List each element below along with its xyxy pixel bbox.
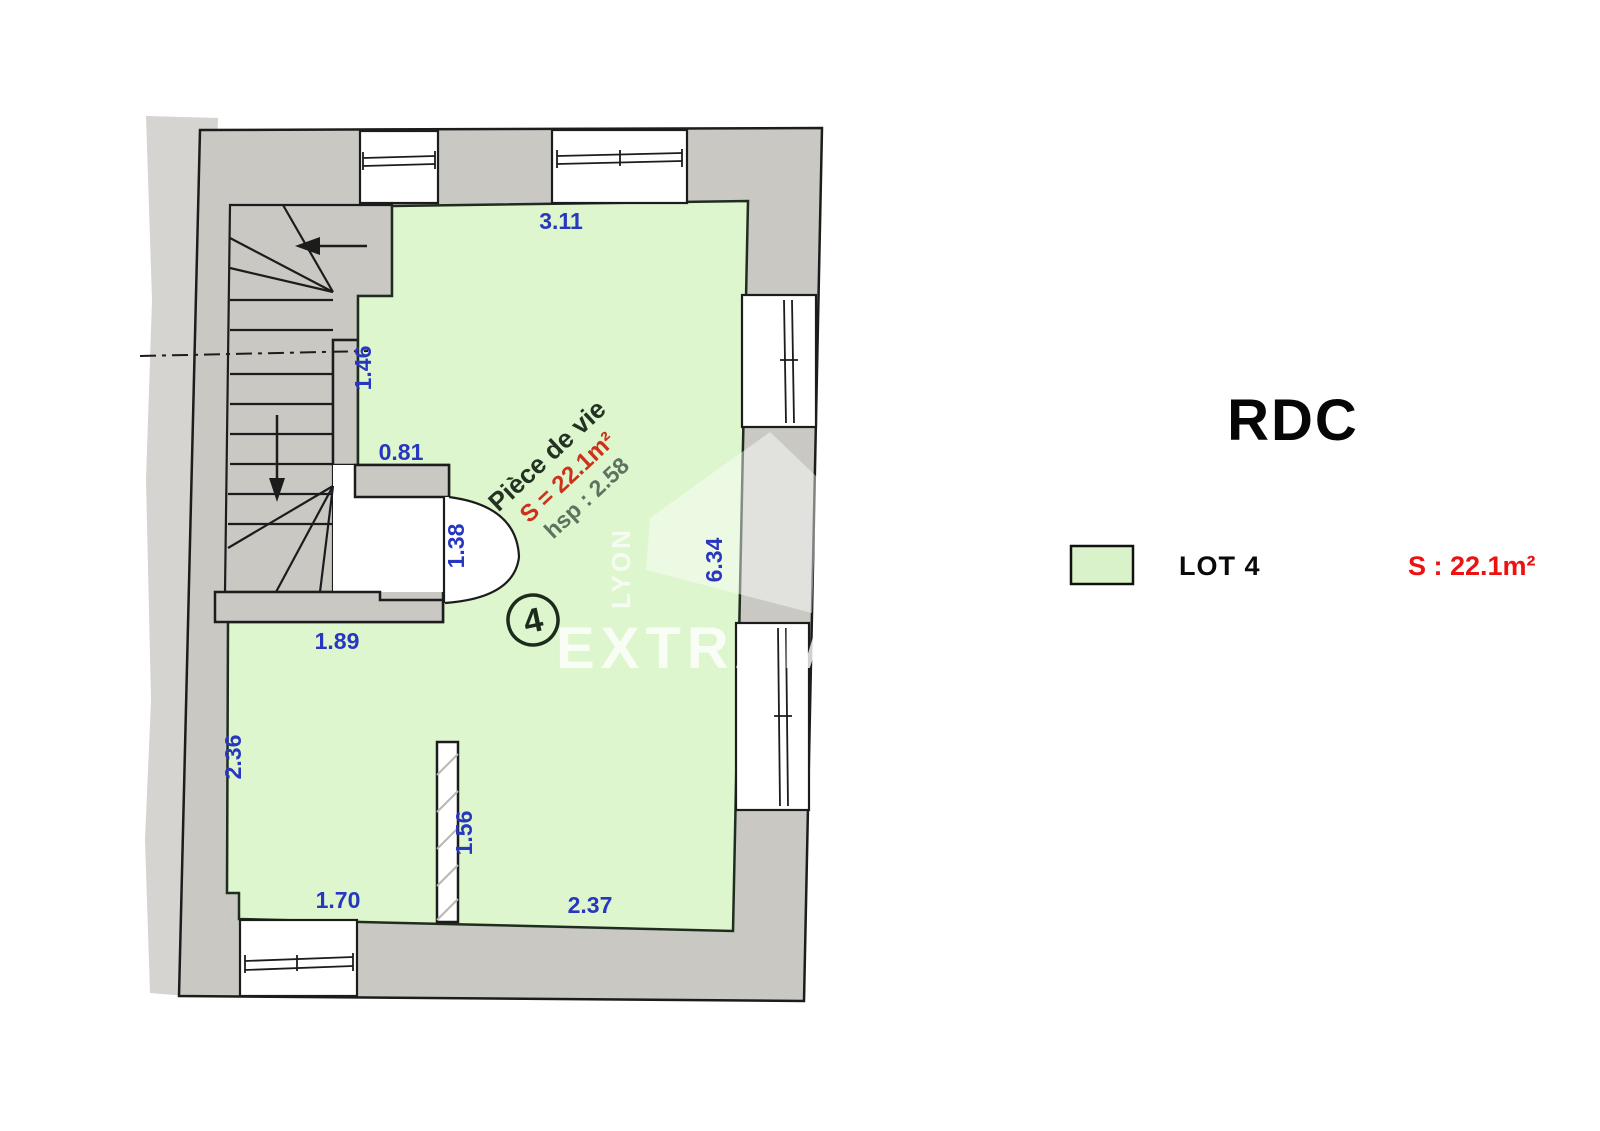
window-top-2 [552,130,687,203]
dim-mid-wall: 1.89 [315,628,360,654]
dim-bottom-left-wall: 1.70 [316,887,361,913]
legend-lot-label: LOT 4 [1179,551,1261,581]
legend-swatch [1071,546,1133,584]
dim-right-wall: 6.34 [701,537,727,582]
window-bottom [240,920,357,996]
floor-plan-page: LYON EXTRAM 3.11 1.46 0.81 1.38 1.89 2.3… [0,0,1600,1131]
dim-partition: 1.56 [451,811,477,856]
page-title: RDC [1227,388,1359,453]
dim-bottom-right-wall: 2.37 [568,892,613,918]
floor-plan-canvas: LYON EXTRAM 3.11 1.46 0.81 1.38 1.89 2.3… [0,0,1600,1131]
dim-left-upper-wall: 1.46 [350,346,376,391]
legend-area-label: S : 22.1m² [1408,551,1536,581]
wall-stub-081 [355,465,449,497]
watermark-city: LYON [606,527,636,609]
dim-top-wall: 3.11 [539,208,583,234]
dim-door-opening: 1.38 [443,523,469,568]
watermark-brand: EXTRAM [556,616,837,681]
window-top-1 [360,131,438,203]
dim-left-lower-wall: 2.36 [220,735,246,780]
dim-stub-wall: 0.81 [379,439,424,465]
window-right-upper [742,295,816,427]
legend: LOT 4 S : 22.1m² [1071,546,1536,584]
